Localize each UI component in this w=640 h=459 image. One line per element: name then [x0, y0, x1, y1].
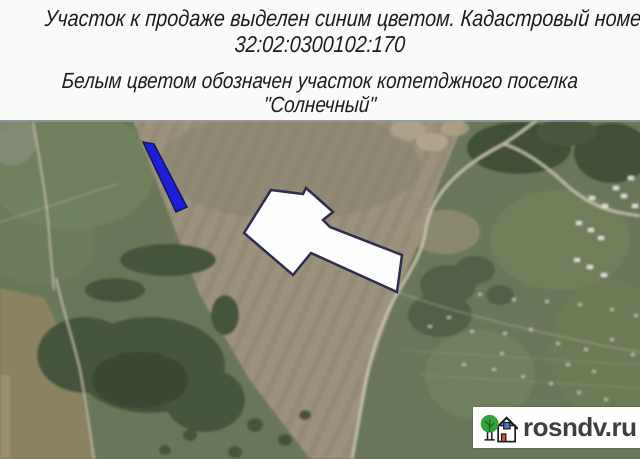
- header-line-sale-plot: Участок к продаже выделен синим цветом. …: [44, 5, 596, 31]
- tree-icon: [481, 414, 499, 439]
- rosndv-logo-icon: [480, 411, 518, 445]
- house-icon: [496, 417, 518, 441]
- listing-image: Участок к продаже выделен синим цветом. …: [0, 0, 640, 459]
- watermark-text: rosndv.ru: [523, 412, 636, 443]
- satellite-map: rosndv.ru: [0, 120, 640, 459]
- village-name: "Солнечный": [44, 93, 596, 117]
- watermark-badge: rosndv.ru: [473, 407, 640, 448]
- header-line-village-plot: Белым цветом обозначен участок котетджно…: [44, 68, 596, 93]
- cadastral-number: 32:02:0300102:170: [44, 31, 596, 57]
- map-top-edge: [0, 120, 640, 122]
- header: Участок к продаже выделен синим цветом. …: [0, 0, 640, 120]
